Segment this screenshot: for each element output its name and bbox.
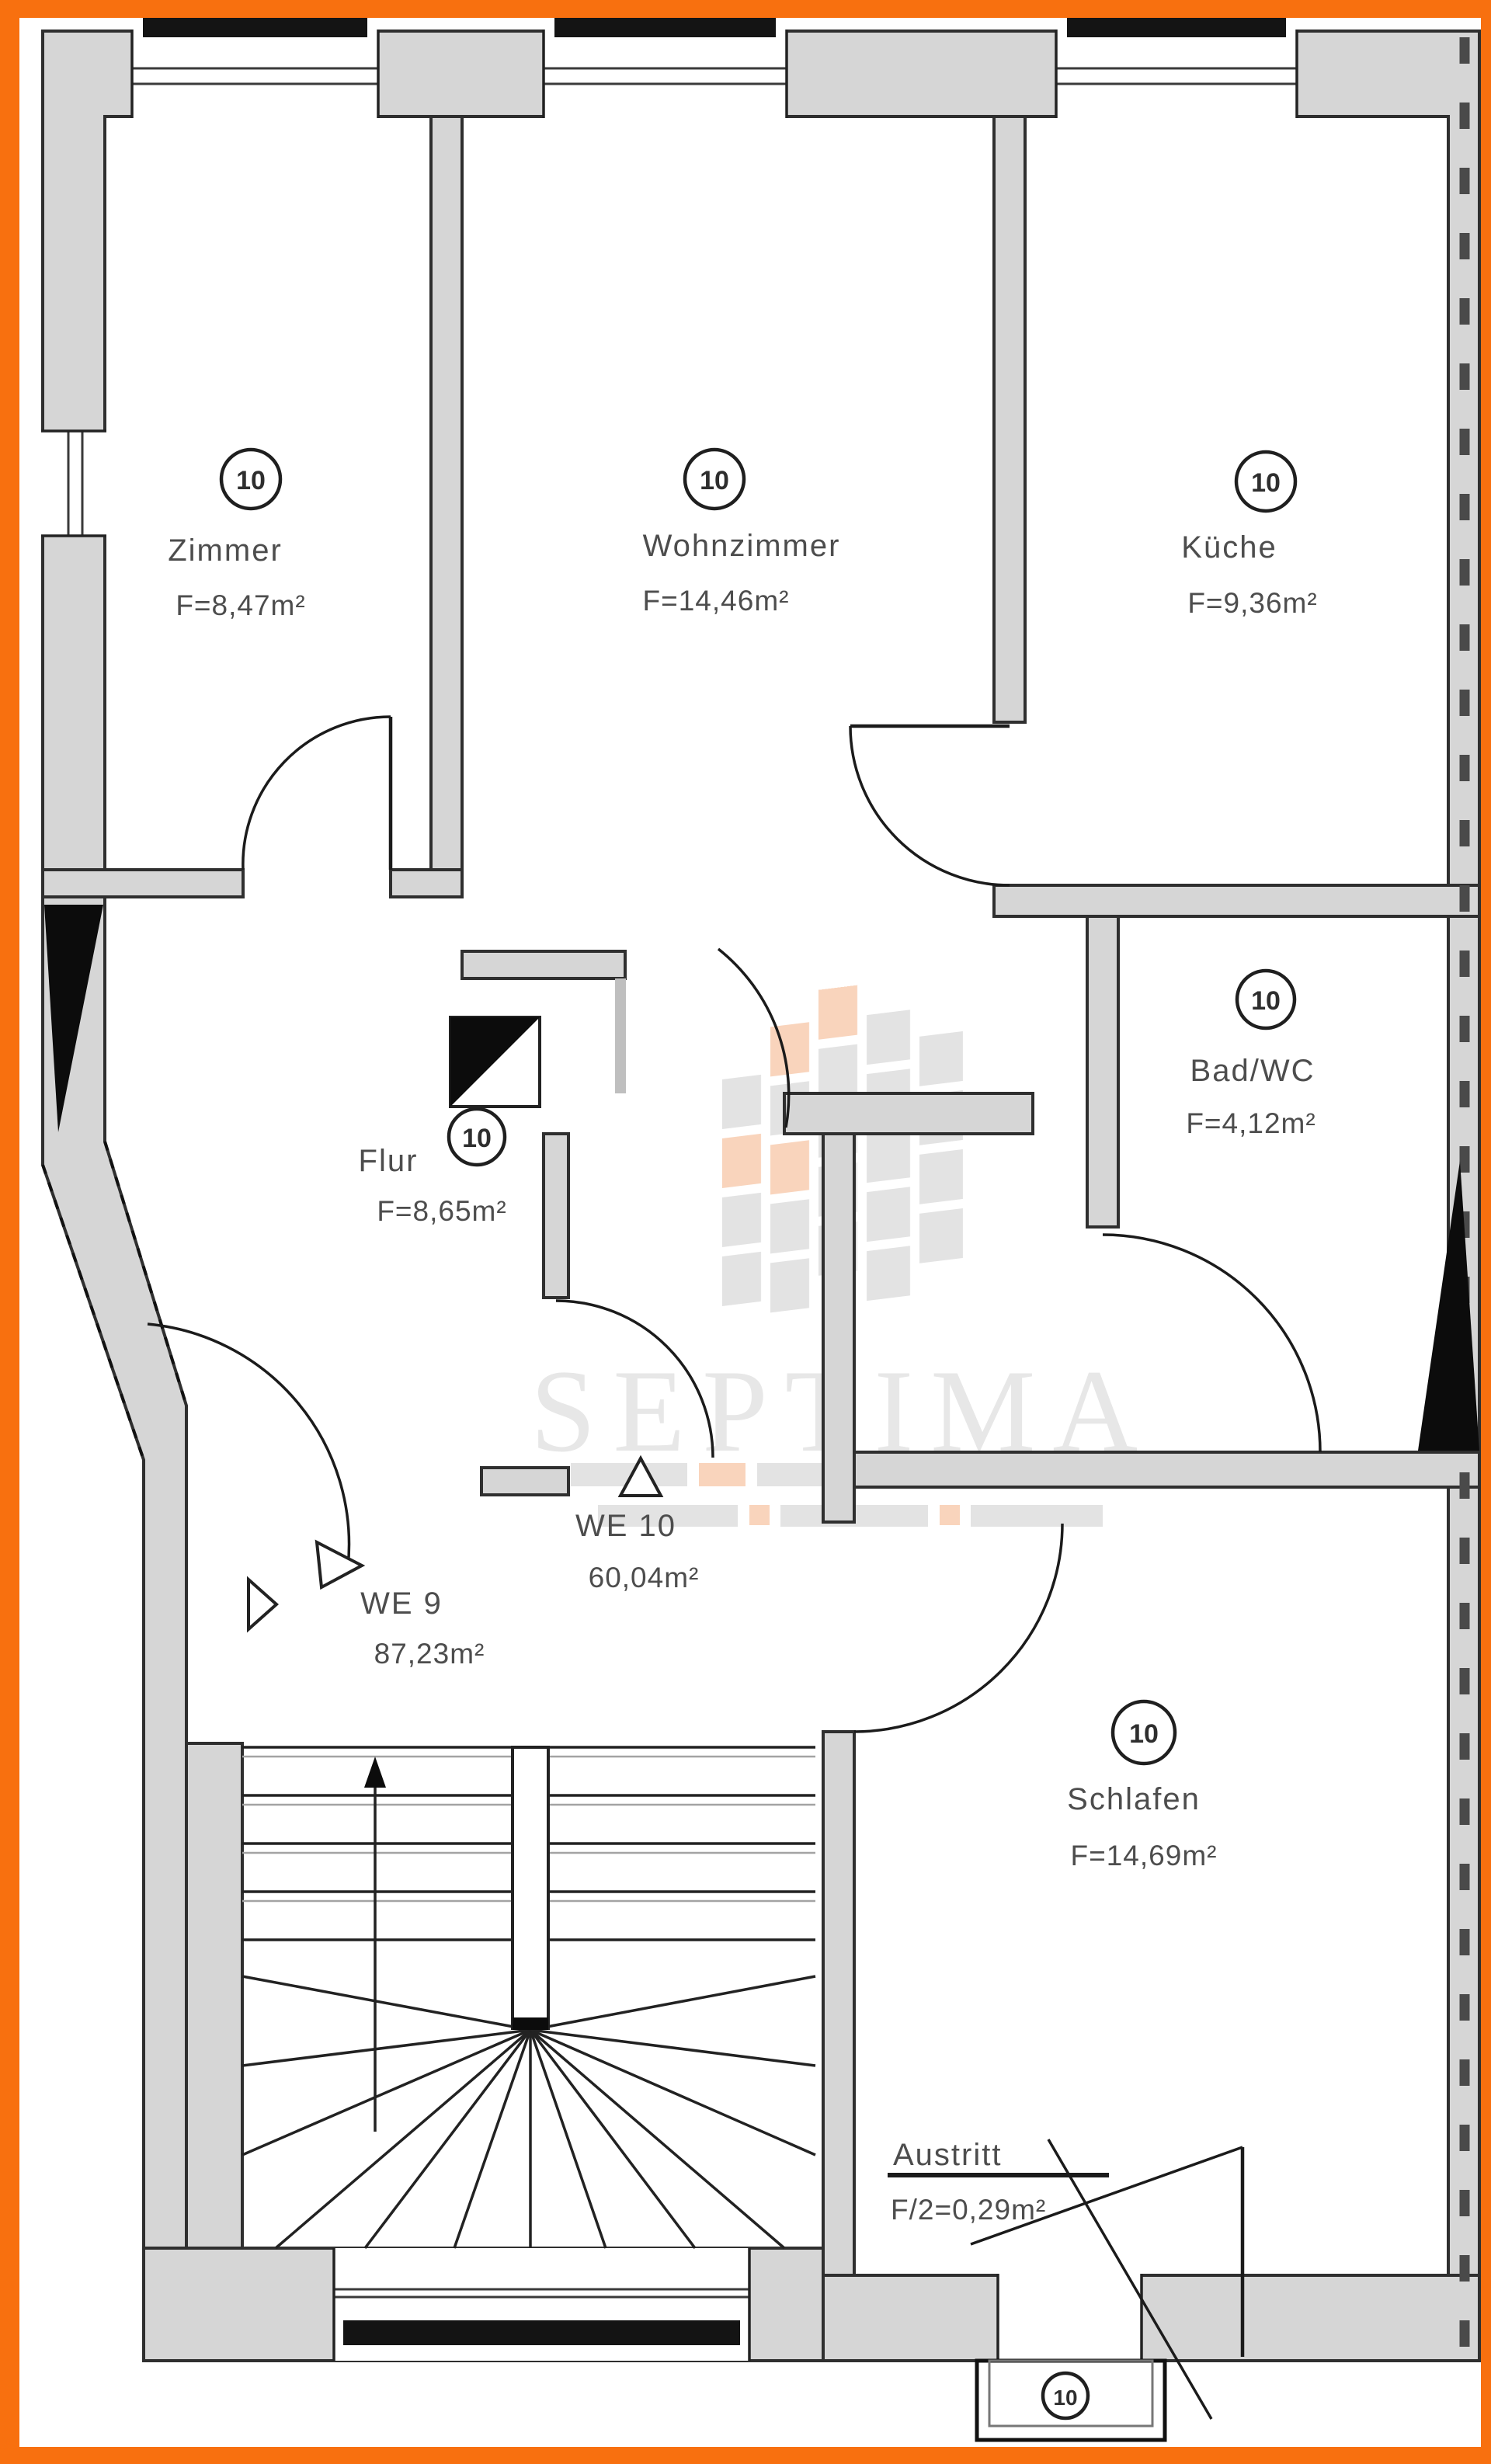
balcony-unit-label: 10 [1043,2373,1088,2418]
room-area: F=4,12m² [1186,1107,1315,1139]
apartment-area: 87,23m² [374,1638,485,1670]
room-area: F=8,65m² [377,1195,506,1227]
room-name: Zimmer [168,533,283,568]
room-name: Flur [359,1144,419,1178]
wall-schlafen-west-lower [823,1732,854,2279]
wall-wohnzimmer-kueche [994,116,1025,722]
window-zimmer [132,11,378,118]
unit-badge: 10 [1251,986,1281,1016]
frame-right [1481,0,1491,2464]
stair-spine-cap [513,2017,548,2030]
frame-bottom [0,2447,1491,2464]
frame-top [0,0,1491,18]
wall-zimmer-flur-right [391,870,462,897]
apartment-name: WE 9 [360,1586,443,1621]
interior-floor [105,116,1448,2275]
room-area: F=14,46m² [643,585,790,617]
room-name: Wohnzimmer [643,529,841,563]
room-name: Bad/WC [1190,1054,1315,1088]
wall-flur-northeast [784,1093,1033,1134]
wall-zimmer-flur-left [43,870,243,897]
room-area: F=9,36m² [1187,587,1317,619]
window-wohnzimmer [544,11,787,118]
unit-badge: 10 [1129,1719,1159,1749]
wall-schlafen-west-upper [823,1134,854,1522]
apartment-area: 60,04m² [589,1562,700,1593]
wall-zimmer-wohnzimmer [431,116,462,870]
floor-plan-svg: SEPTIMA [0,0,1491,2464]
stair-spine-wall [513,1747,548,2028]
room-area: F=8,47m² [176,589,305,621]
wall-we10-entry [544,1134,568,1298]
exit-area: F/2=0,29m² [891,2194,1046,2226]
wall-badwc-schlafen [823,1452,1479,1487]
wall-landing-stub [481,1468,568,1495]
door-jamb-wohnzimmer [615,978,626,1093]
wall-kueche-south [994,885,1479,916]
window-kueche [1056,11,1297,118]
window-staircase [334,2248,749,2361]
room-area: F=14,69m² [1071,1840,1218,1871]
wall-wohnzimmer-flur [462,951,625,978]
wall-badwc-west [1087,916,1118,1227]
chimney-marker [450,1017,540,1107]
floor-plan-page: SEPTIMA [0,0,1491,2464]
unit-badge: 10 [462,1124,492,1153]
exit-name: Austritt [893,2138,1002,2172]
window-left-wall [41,431,106,536]
wall-stair-west [186,1743,242,2252]
unit-badge: 10 [236,466,266,495]
frame-left [0,0,19,2464]
room-name: Küche [1181,530,1277,565]
unit-badge: 10 [1053,2386,1077,2410]
unit-badge: 10 [1251,468,1281,498]
unit-badge: 10 [700,466,729,495]
apartment-name: WE 10 [575,1509,676,1543]
room-name: Schlafen [1067,1782,1201,1816]
